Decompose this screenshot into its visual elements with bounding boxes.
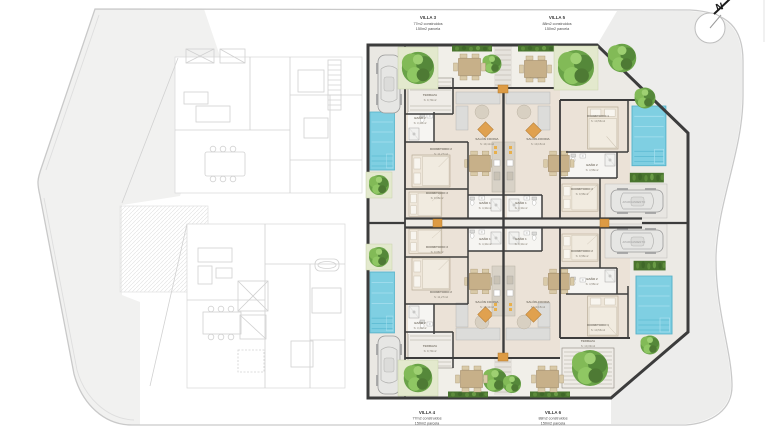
villa4-name: VILLA 4 [419,410,436,415]
villa5-kitchen [504,142,515,192]
tree-icon [641,336,660,355]
tree-icon [558,50,594,86]
pool-villa3 [370,112,395,170]
villa3-kitchen [492,142,503,192]
tree-icon [369,247,389,267]
shower-icon [409,128,419,140]
room-label: DORMITORIO 2 [430,290,452,294]
shower-icon [491,232,501,244]
room-label: TERRAZA [581,339,596,343]
pool-villa6 [636,276,672,334]
room-area: S: 10,56m2 [591,119,606,123]
pool-villa4 [370,272,395,333]
shower-icon [491,199,501,211]
hedge-icon [518,46,558,52]
shower-icon [605,270,615,282]
room-label: BAÑO 2 [414,320,426,325]
room-label: BAÑO 2 [586,276,598,281]
tree-icon [402,52,434,84]
toilet-icon [470,197,475,205]
tree-icon [635,88,656,109]
villa6-built: 88m2 construidos [538,417,567,421]
room-label: DORMITORIO 3 [426,191,448,195]
villa5-built: 88m2 construidos [542,22,571,26]
room-area: S: 9,68m2 [431,196,444,200]
villa6-parking: APARCAMIENTO [605,224,667,258]
room-label: DORMITORIO 2 [571,249,593,253]
room-area: S: 10,33m2 [581,344,596,348]
tree-icon [369,175,389,195]
villa3-plot: 150m2 parcela [416,27,441,31]
villa4-built: 77m2 construidos [412,417,441,421]
villa5-parking: APARCAMIENTO [605,184,667,218]
room-area: S: 9,79m2 [424,349,437,353]
room-label: BAÑO 2 [586,162,598,167]
room-area: S: 10,56m2 [591,328,606,332]
tree-icon [503,375,521,393]
site-plan-svg: TERRAZA S: 9,79m2 BAÑO 2 S: 3,43m2 DORMI… [0,0,770,432]
villa6-kitchen [504,266,515,316]
room-label: BAÑO 2 [414,115,426,120]
room-area: S: 19,11m2 [480,142,495,146]
bed-icon [412,258,450,290]
villa6-plot: 150m2 parcela [541,422,566,426]
tree-icon [404,364,433,393]
room-area: S: 4,34m2 [479,242,492,246]
pool-villa5 [632,106,666,166]
room-label: DORMITORIO 3 [426,245,448,249]
toilet-icon [470,230,475,238]
sink-icon [427,322,433,326]
room-label: BAÑO 1 [479,200,491,205]
hedge-icon [634,261,666,271]
room-label: DORMITORIO 2 [430,147,452,151]
room-label: SALÓN COCINA [475,299,499,304]
room-area: S: 19,15m2 [531,142,546,146]
sink-icon [580,154,586,158]
room-area: S: 11,27m2 [434,152,449,156]
villa-block: TERRAZA S: 9,79m2 BAÑO 2 S: 3,43m2 DORMI… [366,44,688,398]
floorplan-canvas: TERRAZA S: 9,79m2 BAÑO 2 S: 3,43m2 DORMI… [0,0,770,432]
room-label: SALÓN-COCINA [526,299,550,304]
sink-icon [524,196,530,200]
room-area: S: 9,58m2 [576,254,589,258]
parking-label: APARCAMIENTO [623,240,646,244]
parking-label: APARCAMIENTO [623,200,646,204]
villa3-name: VILLA 3 [420,15,437,20]
room-area: S: 9,58m2 [576,192,589,196]
bed-icon [412,155,450,187]
toilet-icon [532,232,537,240]
room-area: S: 11,27m2 [434,295,449,299]
room-label: DORMITORIO 1 [587,114,609,118]
hedge-icon [448,392,488,398]
sink-icon [479,196,485,200]
room-area: S: 4,34m2 [479,206,492,210]
sink-icon [479,230,485,234]
room-area: S: 4,34m2 [515,206,528,210]
hedge-icon [452,46,492,52]
room-area: S: 9,68m2 [431,250,444,254]
room-label: TERRAZA [423,93,438,97]
room-label: SALÓN COCINA [475,136,499,141]
toilet-icon [532,197,537,205]
room-area: S: 9,79m2 [424,98,437,102]
room-area: S: 3,43m2 [414,326,427,330]
hedge-icon [530,392,570,398]
villa4-plot: 150m2 parcela [415,422,440,426]
villa6-name: VILLA 6 [545,410,562,415]
room-area: S: 19,11m2 [480,305,495,309]
room-label: DORMITORIO 1 [587,323,609,327]
room-area: S: 19,15m2 [531,305,546,309]
room-area: S: 4,58m2 [586,282,599,286]
tree-icon [572,350,608,386]
room-label: BAÑO 1 [515,200,527,205]
room-area: S: 4,34m2 [515,242,528,246]
room-area: S: 4,58m2 [586,168,599,172]
room-label: DORMITORIO 2 [571,187,593,191]
shower-icon [409,306,419,318]
room-area: S: 3,43m2 [414,121,427,125]
villa5-plot: 150m2 parcela [545,27,570,31]
shower-icon [605,154,615,166]
room-label: SALÓN-COCINA [526,136,550,141]
room-label: BAÑO 1 [515,236,527,241]
tree-icon [608,44,637,73]
sink-icon [524,231,530,235]
hedge-icon [630,173,664,183]
villa5-name: VILLA 5 [549,15,566,20]
villa3-built: 77m2 construidos [413,22,442,26]
room-label: BAÑO 1 [479,236,491,241]
room-label: TERRAZA [423,344,438,348]
